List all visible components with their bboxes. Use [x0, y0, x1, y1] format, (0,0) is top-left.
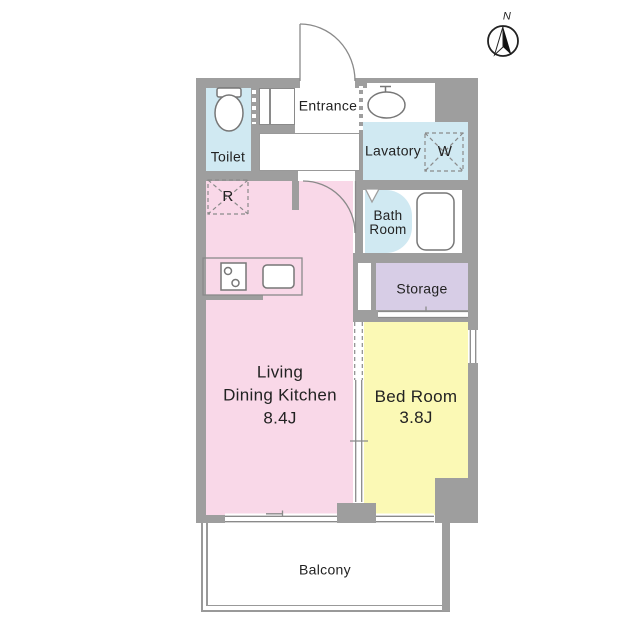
north-arrow-icon — [488, 26, 518, 56]
wall-corner-block — [435, 78, 478, 122]
ldk-label: Living Dining Kitchen 8.4J — [223, 361, 337, 430]
washer-label: W — [438, 143, 452, 161]
shoe-cabinet-divider — [269, 88, 271, 125]
entrance-step — [259, 133, 360, 171]
wall-storage-left — [371, 263, 376, 310]
bedroom-label: Bed Room 3.8J — [375, 386, 458, 428]
toilet-label: Toilet — [211, 149, 245, 166]
wall-top — [196, 78, 300, 88]
bathroom-label: Bath Room — [369, 209, 406, 237]
balcony-label: Balcony — [299, 562, 351, 579]
refrigerator-label: R — [222, 188, 233, 206]
lavatory-label: Lavatory — [365, 143, 421, 160]
wall-top — [367, 78, 435, 83]
shoe-cabinet — [259, 88, 295, 125]
closet-recess-floor — [357, 263, 371, 310]
wall-lavatory-bath — [363, 180, 478, 190]
storage-label: Storage — [396, 281, 447, 298]
wall-block-bottom-mid — [337, 503, 376, 523]
entrance-label: Entrance — [299, 98, 357, 115]
wall-right — [468, 78, 478, 523]
ldk-floor — [206, 181, 353, 515]
balcony-rail-inner-bottom — [206, 605, 442, 607]
entrance-door — [300, 24, 355, 81]
wall-block-bottom-left — [196, 515, 225, 523]
wall-bath-bottom — [353, 253, 478, 263]
wall-block-bottom-right — [435, 478, 478, 523]
wall-storage-bottom — [353, 310, 478, 322]
wall-bath-right — [462, 190, 470, 253]
balcony-wall-right — [442, 523, 450, 611]
kitchen-counter-base — [203, 295, 263, 300]
north-label: N — [503, 10, 511, 23]
wall-left — [196, 78, 206, 523]
wall-shoe-cabinet — [251, 125, 295, 133]
wall-hall — [196, 171, 298, 181]
floor-plan: Toilet Entrance Lavatory W R Bath Room S… — [0, 0, 640, 640]
balcony-rail-inner-left — [206, 523, 208, 606]
wall-stub — [292, 181, 299, 210]
wall-entrance-lavatory — [359, 83, 363, 133]
